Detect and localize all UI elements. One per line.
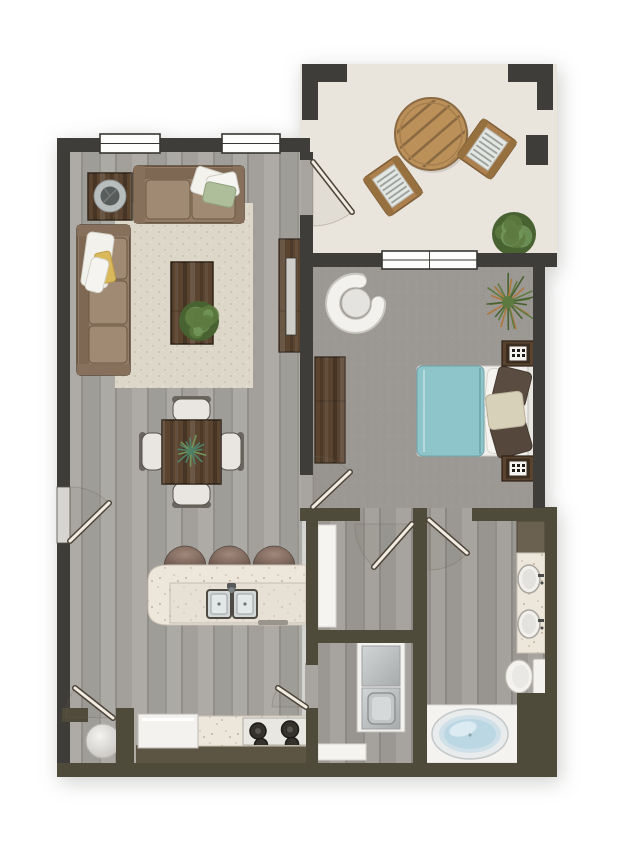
dining-chair xyxy=(172,396,211,421)
nightstand xyxy=(502,341,534,366)
patio-column xyxy=(302,64,318,120)
window xyxy=(382,251,477,269)
shrub xyxy=(492,212,536,256)
wall-segment xyxy=(472,508,553,521)
wall-segment xyxy=(517,693,557,763)
wall-segment xyxy=(413,508,427,521)
patio xyxy=(300,64,557,256)
dining-chair xyxy=(219,432,244,471)
water-heater xyxy=(86,724,120,758)
window xyxy=(100,134,160,153)
wall-segment xyxy=(116,708,134,763)
duvet xyxy=(417,366,484,456)
tv-console xyxy=(279,239,301,352)
linen-cabinet xyxy=(517,521,545,553)
wall-segment xyxy=(57,763,557,777)
dining-chair xyxy=(172,483,211,508)
wall-segment xyxy=(57,138,70,487)
living-room xyxy=(66,148,318,765)
wall-segment xyxy=(533,253,545,518)
closet-shelf xyxy=(318,525,336,627)
end-table xyxy=(88,173,132,220)
floor-plan xyxy=(0,0,620,844)
wall-segment xyxy=(300,152,313,160)
sofa xyxy=(77,225,130,375)
towel-bar xyxy=(258,620,288,625)
kitchen-island xyxy=(148,565,306,625)
window xyxy=(222,134,280,153)
laundry xyxy=(318,641,413,763)
stacked-washer-dryer xyxy=(357,641,405,732)
patio-column xyxy=(537,64,553,110)
nightstand xyxy=(502,456,534,481)
dining-chair xyxy=(139,432,164,471)
double-vanity xyxy=(517,553,545,653)
kitchen-counter-run xyxy=(136,714,308,763)
soaking-tub xyxy=(424,705,518,763)
coffee-table-plant xyxy=(179,301,219,341)
laundry-shelf xyxy=(318,744,366,760)
floor-plan-canvas xyxy=(0,0,620,844)
dresser xyxy=(315,357,345,463)
coffee-table xyxy=(171,262,219,344)
bed xyxy=(417,364,534,459)
wall-segment xyxy=(57,543,70,775)
wall-segment xyxy=(306,630,427,643)
wall-segment xyxy=(306,708,318,763)
toilet xyxy=(506,659,547,694)
patio-column xyxy=(526,135,548,165)
loveseat xyxy=(134,165,244,223)
tv xyxy=(286,258,296,335)
